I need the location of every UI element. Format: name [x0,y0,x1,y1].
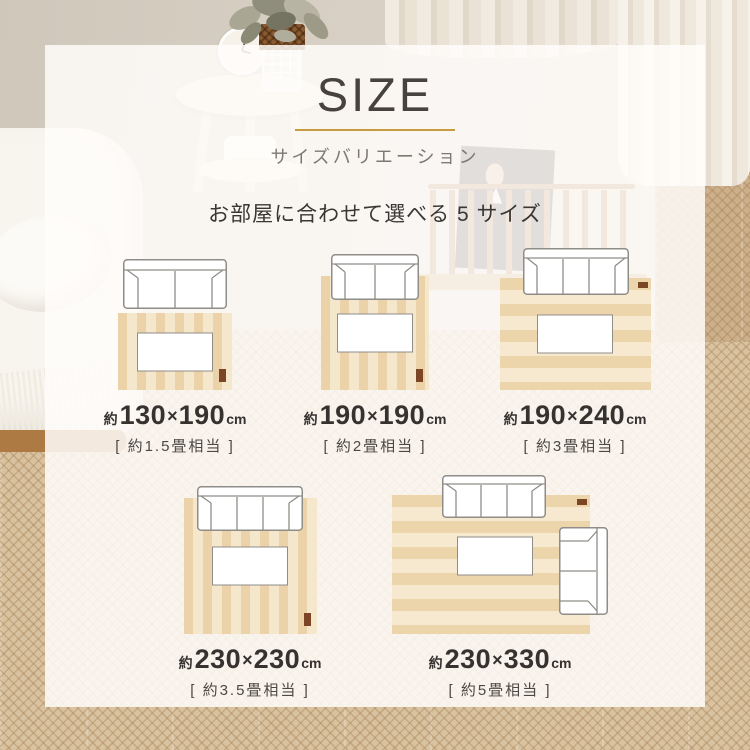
title-divider [295,129,455,131]
diagram-box [184,474,317,634]
leaf [273,29,296,44]
sofa-top-view-icon [442,475,546,518]
size-option-190x190: 約190×190cm [ 約2畳相当 ] [275,243,475,456]
layout-diagram [392,475,608,634]
size-panel: SIZE サイズバリエーション お部屋に合わせて選べる 5 サイズ [45,45,705,707]
diagram-box [118,243,232,390]
table-outline [457,537,533,576]
size-option-130x190: 約130×190cm [ 約1.5畳相当 ] [75,243,275,456]
tatami-equivalent: [ 約5畳相当 ] [429,679,572,700]
rug-tag [638,282,648,288]
size-row-1: 約130×190cm [ 約1.5畳相当 ] [75,243,675,456]
size-dimensions: 約190×240cm [504,402,647,429]
diagram-box [321,243,429,390]
size-caption: 約130×190cm [ 約1.5畳相当 ] [104,402,247,456]
layout-diagram [184,486,317,634]
size-caption: 約190×240cm [ 約3畳相当 ] [504,402,647,456]
rug-tag [416,369,423,382]
size-option-230x230: 約230×230cm [ 約3.5畳相当 ] [125,474,375,700]
table-outline [137,332,213,371]
diagram-box [392,474,608,634]
size-option-190x240: 約190×240cm [ 約3畳相当 ] [475,243,675,456]
diagram-box [500,243,651,390]
tatami-equivalent: [ 約2畳相当 ] [304,435,447,456]
size-dimensions: 約190×190cm [304,402,447,429]
size-option-230x330: 約230×330cm [ 約5畳相当 ] [375,474,625,700]
tatami-equivalent: [ 約3畳相当 ] [504,435,647,456]
layout-diagram [321,254,429,390]
size-caption: 約190×190cm [ 約2畳相当 ] [304,402,447,456]
sofa-top-view-icon [197,486,303,531]
size-caption: 約230×230cm [ 約3.5畳相当 ] [179,646,322,700]
rug-swatch [118,313,232,390]
rug-tag [304,613,311,626]
sofa-side-top-view-icon [559,527,608,615]
section-title: SIZE [45,71,705,118]
section-subtitle: サイズバリエーション [45,143,705,169]
layout-diagram [118,259,232,390]
table-outline [212,547,288,586]
size-dimensions: 約230×330cm [429,646,572,673]
product-size-image: SIZE サイズバリエーション お部屋に合わせて選べる 5 サイズ [0,0,750,750]
sofa-top-view-icon [123,259,227,309]
size-row-2: 約230×230cm [ 約3.5畳相当 ] [125,474,625,700]
size-dimensions: 約130×190cm [104,402,247,429]
sofa-top-view-icon [331,254,419,300]
layout-diagram [500,243,651,390]
sofa-top-view-icon [523,248,629,295]
size-dimensions: 約230×230cm [179,646,322,673]
tatami-equivalent: [ 約3.5畳相当 ] [179,679,322,700]
table-outline [537,315,613,354]
tatami-equivalent: [ 約1.5畳相当 ] [104,435,247,456]
lead-heading: お部屋に合わせて選べる 5 サイズ [45,198,705,228]
table-outline [337,314,413,353]
size-caption: 約230×330cm [ 約5畳相当 ] [429,646,572,700]
rug-tag [577,499,587,505]
rug-tag [219,369,226,382]
